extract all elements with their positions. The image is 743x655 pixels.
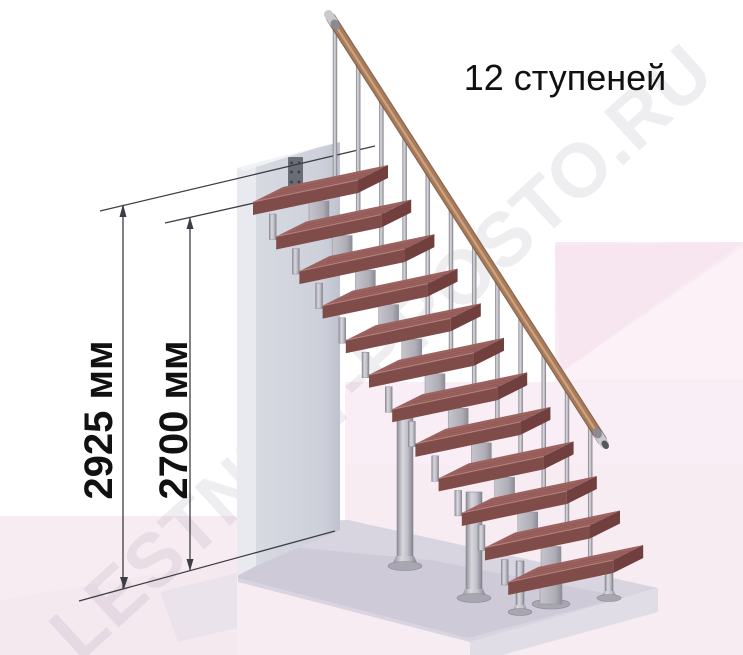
handrail-end-ring xyxy=(597,432,599,434)
column-base-plate xyxy=(508,609,532,616)
tread-spacer-post xyxy=(501,560,508,586)
handrail-end-tip xyxy=(605,444,607,447)
baluster xyxy=(542,351,546,497)
mount-hole xyxy=(290,162,293,165)
tread-spacer-post xyxy=(316,283,323,309)
column-base-plate xyxy=(457,594,491,603)
handrail-top-ring xyxy=(335,24,337,27)
mount-hole xyxy=(290,171,293,174)
tread-spacer-post xyxy=(385,387,392,413)
baluster xyxy=(588,424,592,566)
baluster xyxy=(333,26,337,186)
stair-diagram-page: LESTNICY-PROSTO.RU 12 ступеней 2925 мм 2… xyxy=(0,0,743,655)
tread-spacer-post xyxy=(408,421,415,447)
tread-spacer-post xyxy=(339,318,346,344)
dimension-label-floor: 2700 мм xyxy=(152,340,196,499)
tread-spacer-post xyxy=(292,249,299,274)
tread-spacer-post xyxy=(269,214,276,240)
mount-hole xyxy=(298,171,301,174)
tread-spacer-post xyxy=(478,525,485,551)
mount-hole xyxy=(290,181,293,184)
mount-hole xyxy=(298,181,301,184)
baluster xyxy=(565,387,569,531)
dimension-label-overall: 2925 мм xyxy=(77,340,121,499)
tread-spacer-post xyxy=(362,352,369,378)
column-base-plate xyxy=(597,595,621,602)
staircase-illustration: LESTNICY-PROSTO.RU 12 ступеней 2925 мм 2… xyxy=(0,0,743,655)
tread-spacer-post xyxy=(455,490,462,516)
wall-side-face xyxy=(237,163,256,576)
step-count-title: 12 ступеней xyxy=(464,57,666,98)
baluster xyxy=(356,62,360,220)
tread-spacer-post xyxy=(432,456,439,482)
column-base-plate xyxy=(388,562,422,571)
